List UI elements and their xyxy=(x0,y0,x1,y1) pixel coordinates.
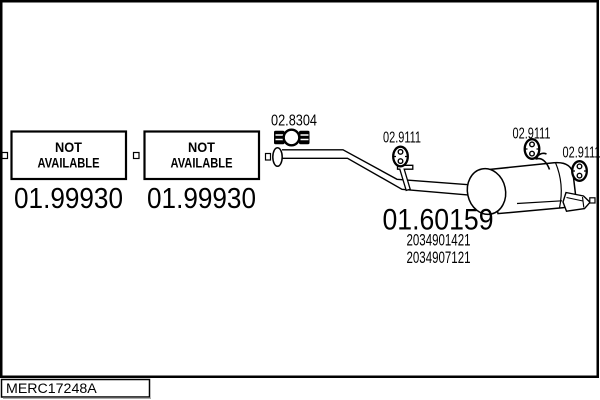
footer-code-label: MERC17248A xyxy=(6,381,97,397)
not-available-label-line2: AVAILABLE xyxy=(38,156,100,171)
clamp-icon xyxy=(274,130,310,146)
oe-reference: 2034907121 xyxy=(407,249,471,267)
not-available-label-line1: NOT xyxy=(55,140,83,155)
not-available-label-line1: NOT xyxy=(188,140,216,155)
hanger-hole-top xyxy=(398,150,403,155)
connector-nub xyxy=(266,154,271,161)
tailpipe-drawing xyxy=(563,193,595,212)
tailpipe-outline xyxy=(563,193,590,212)
hanger-hole-bottom xyxy=(530,151,535,156)
part-number-rear-hanger-right: 02.9111 xyxy=(563,145,600,162)
connector-nub xyxy=(2,153,8,159)
front-pipe-drawing xyxy=(266,148,473,196)
not-available-label-line2: AVAILABLE xyxy=(171,156,233,171)
connector-nub xyxy=(590,198,595,203)
pipe-bottom-edge xyxy=(282,158,472,195)
hanger-hole-bottom xyxy=(577,173,582,178)
hanger-hole-bottom xyxy=(398,159,403,164)
footer-code-box: MERC17248A xyxy=(2,380,152,399)
not-available-box-1: NOT AVAILABLE 01.99930 xyxy=(12,132,127,216)
not-available-box-2: NOT AVAILABLE 01.99930 xyxy=(145,132,260,216)
hanger-hole-top xyxy=(577,164,582,169)
part-number-rear-hanger-top: 02.9111 xyxy=(513,126,551,143)
oe-reference: 2034901421 xyxy=(407,232,471,250)
rubber-hanger-icon xyxy=(572,161,587,181)
part-number-front-hanger: 02.9111 xyxy=(383,130,421,147)
connector-nub xyxy=(134,153,140,159)
hanger-bracket xyxy=(398,165,413,190)
hanger-hole-top xyxy=(530,142,535,147)
pipe-top-edge xyxy=(282,150,470,185)
clamp-ring xyxy=(284,130,300,146)
clamp-right-jaw xyxy=(299,131,310,145)
exhaust-flange-icon xyxy=(273,148,282,167)
part-number: 01.99930 xyxy=(147,183,256,215)
part-number: 01.99930 xyxy=(14,183,123,215)
part-number-clamp: 02.8304 xyxy=(271,113,317,130)
rubber-hanger-icon xyxy=(393,147,408,167)
exhaust-parts-diagram: NOT AVAILABLE 01.99930 NOT AVAILABLE 01.… xyxy=(0,0,600,400)
